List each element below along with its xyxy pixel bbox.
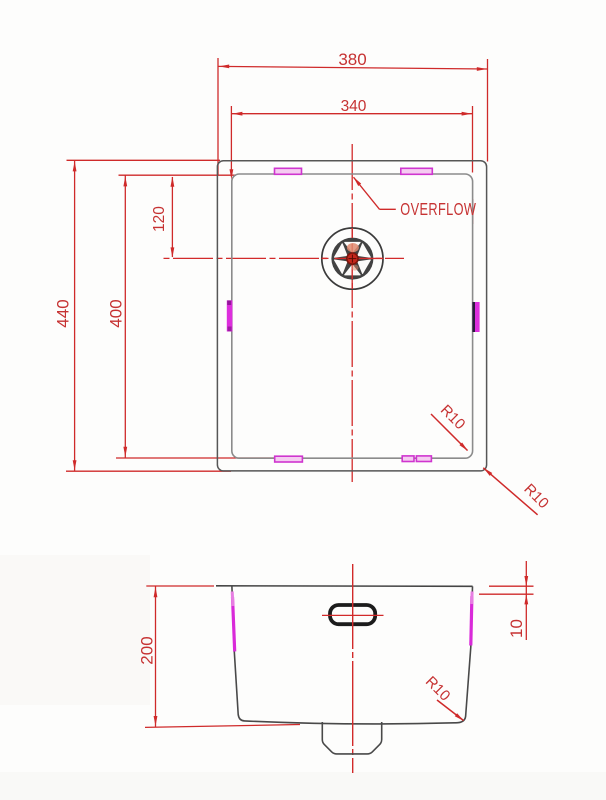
svg-text:120: 120 xyxy=(151,206,168,232)
svg-text:200: 200 xyxy=(137,636,156,664)
svg-text:OVERFLOW: OVERFLOW xyxy=(400,200,476,219)
svg-text:340: 340 xyxy=(341,98,367,115)
svg-text:380: 380 xyxy=(338,50,366,69)
svg-text:440: 440 xyxy=(53,299,72,327)
svg-text:10: 10 xyxy=(507,619,526,638)
svg-text:400: 400 xyxy=(106,299,125,327)
